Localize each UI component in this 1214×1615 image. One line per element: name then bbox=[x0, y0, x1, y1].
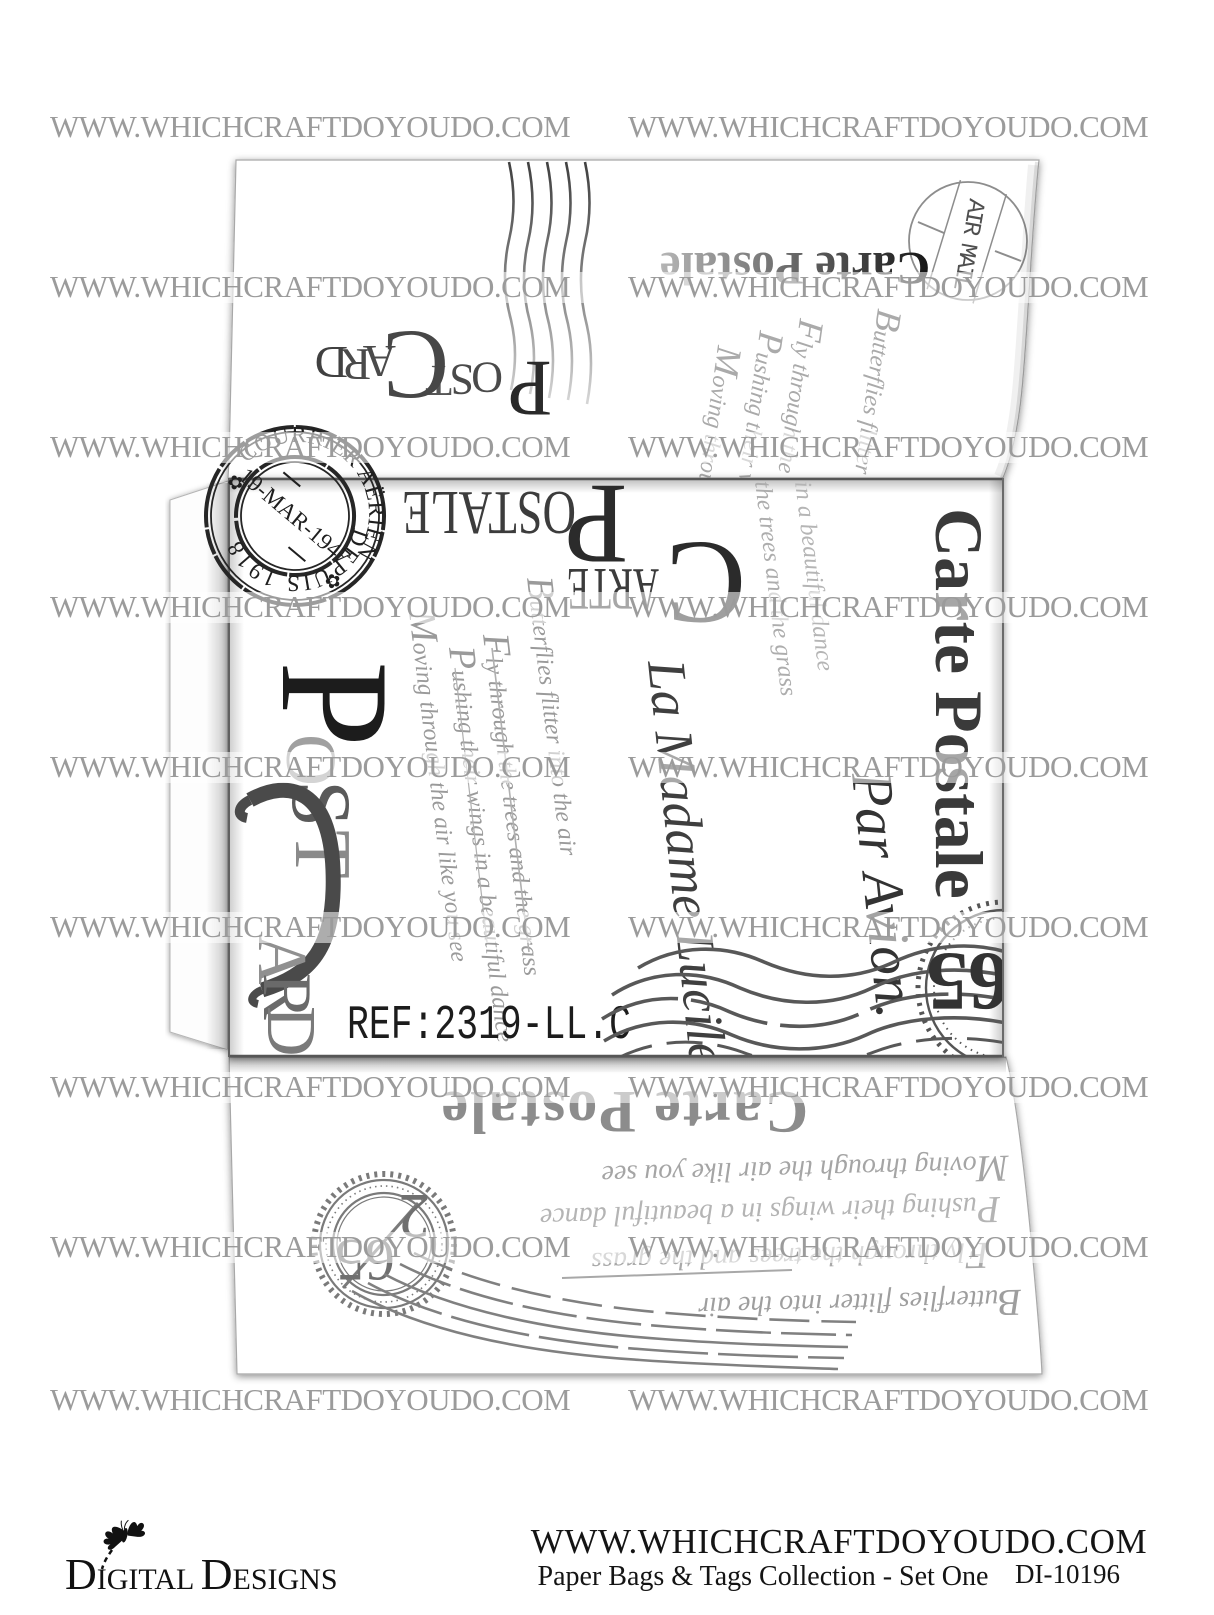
svg-text:Carte Postale: Carte Postale bbox=[921, 508, 997, 899]
svg-text:WWW.WHICHCRAFTDOYOUDO.COM: WWW.WHICHCRAFTDOYOUDO.COM bbox=[628, 269, 1148, 304]
svg-text:P: P bbox=[508, 344, 553, 432]
svg-text:REF:2319-LL.C: REF:2319-LL.C bbox=[347, 999, 631, 1053]
svg-text:WWW.WHICHCRAFTDOYOUDO.COM: WWW.WHICHCRAFTDOYOUDO.COM bbox=[628, 429, 1148, 464]
svg-text:WWW.WHICHCRAFTDOYOUDO.COM: WWW.WHICHCRAFTDOYOUDO.COM bbox=[628, 109, 1148, 144]
svg-text:WWW.WHICHCRAFTDOYOUDO.COM: WWW.WHICHCRAFTDOYOUDO.COM bbox=[50, 909, 570, 944]
svg-text:WWW.WHICHCRAFTDOYOUDO.COM: WWW.WHICHCRAFTDOYOUDO.COM bbox=[628, 909, 1148, 944]
svg-text:WWW.WHICHCRAFTDOYOUDO.COM: WWW.WHICHCRAFTDOYOUDO.COM bbox=[531, 1522, 1147, 1561]
svg-text:O: O bbox=[471, 353, 503, 402]
svg-text:WWW.WHICHCRAFTDOYOUDO.COM: WWW.WHICHCRAFTDOYOUDO.COM bbox=[628, 1382, 1148, 1417]
svg-text:WWW.WHICHCRAFTDOYOUDO.COM: WWW.WHICHCRAFTDOYOUDO.COM bbox=[50, 269, 570, 304]
svg-text:WWW.WHICHCRAFTDOYOUDO.COM: WWW.WHICHCRAFTDOYOUDO.COM bbox=[50, 589, 570, 624]
svg-text:WWW.WHICHCRAFTDOYOUDO.COM: WWW.WHICHCRAFTDOYOUDO.COM bbox=[50, 1229, 570, 1264]
svg-text:65: 65 bbox=[926, 935, 1010, 1028]
svg-text:Paper Bags & Tags Collection -: Paper Bags & Tags Collection - Set One bbox=[538, 1561, 989, 1592]
svg-text:DI-10196: DI-10196 bbox=[1015, 1559, 1120, 1589]
svg-text:C: C bbox=[666, 517, 746, 650]
svg-text:WWW.WHICHCRAFTDOYOUDO.COM: WWW.WHICHCRAFTDOYOUDO.COM bbox=[50, 429, 570, 464]
svg-text:WWW.WHICHCRAFTDOYOUDO.COM: WWW.WHICHCRAFTDOYOUDO.COM bbox=[628, 749, 1148, 784]
svg-text:WWW.WHICHCRAFTDOYOUDO.COM: WWW.WHICHCRAFTDOYOUDO.COM bbox=[50, 1382, 570, 1417]
svg-text:WWW.WHICHCRAFTDOYOUDO.COM: WWW.WHICHCRAFTDOYOUDO.COM bbox=[50, 109, 570, 144]
svg-text:D: D bbox=[252, 1006, 329, 1057]
svg-text:WWW.WHICHCRAFTDOYOUDO.COM: WWW.WHICHCRAFTDOYOUDO.COM bbox=[628, 589, 1148, 624]
svg-text:WWW.WHICHCRAFTDOYOUDO.COM: WWW.WHICHCRAFTDOYOUDO.COM bbox=[50, 749, 570, 784]
svg-text:D: D bbox=[315, 337, 348, 388]
svg-text:S: S bbox=[450, 355, 474, 404]
svg-text:WWW.WHICHCRAFTDOYOUDO.COM: WWW.WHICHCRAFTDOYOUDO.COM bbox=[50, 1069, 570, 1104]
svg-text:WWW.WHICHCRAFTDOYOUDO.COM: WWW.WHICHCRAFTDOYOUDO.COM bbox=[628, 1069, 1148, 1104]
svg-text:WWW.WHICHCRAFTDOYOUDO.COM: WWW.WHICHCRAFTDOYOUDO.COM bbox=[628, 1229, 1148, 1264]
svg-text:OSTALE: OSTALE bbox=[402, 478, 576, 546]
